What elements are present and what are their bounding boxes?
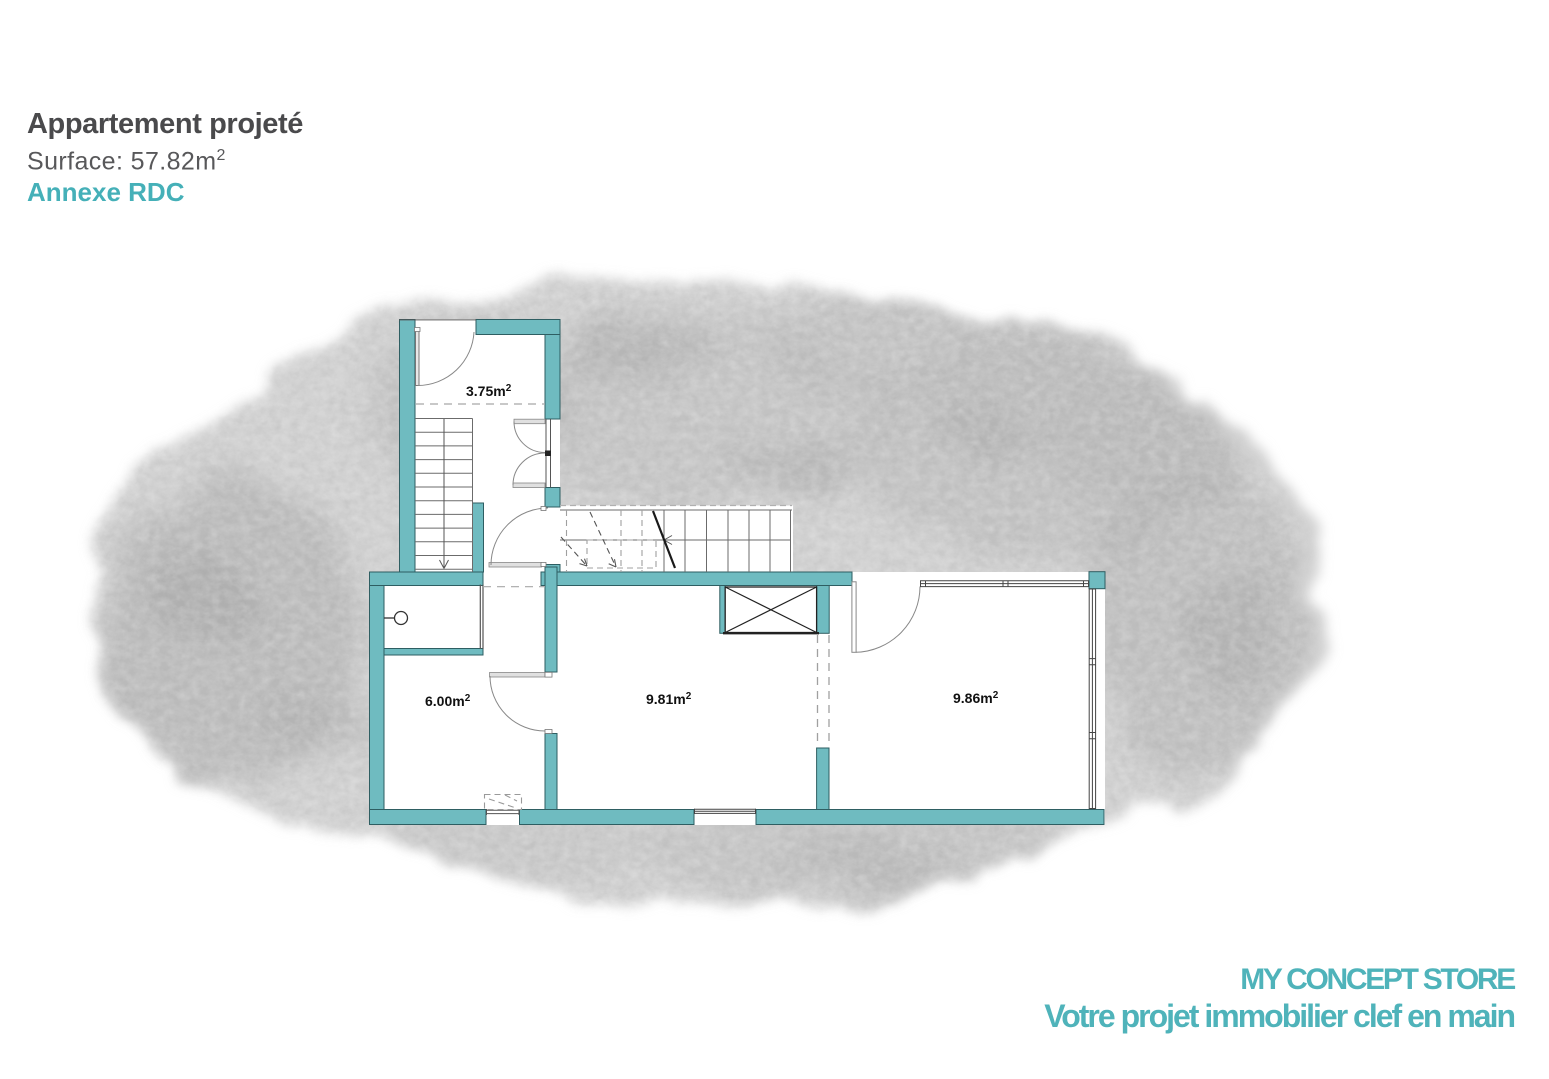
svg-text:3.75m2: 3.75m2 [466,383,512,399]
svg-text:9.81m2: 9.81m2 [646,691,692,707]
svg-text:6.00m2: 6.00m2 [425,693,471,709]
svg-text:9.86m2: 9.86m2 [953,690,999,706]
